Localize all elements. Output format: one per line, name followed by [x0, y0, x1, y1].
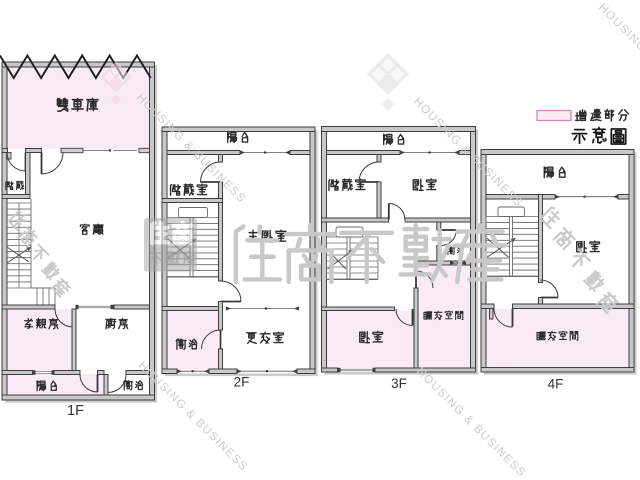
svg-text:4F: 4F	[548, 377, 564, 392]
svg-text:3F: 3F	[391, 376, 407, 391]
svg-text:1F: 1F	[67, 403, 84, 419]
svg-text:2F: 2F	[234, 375, 250, 390]
